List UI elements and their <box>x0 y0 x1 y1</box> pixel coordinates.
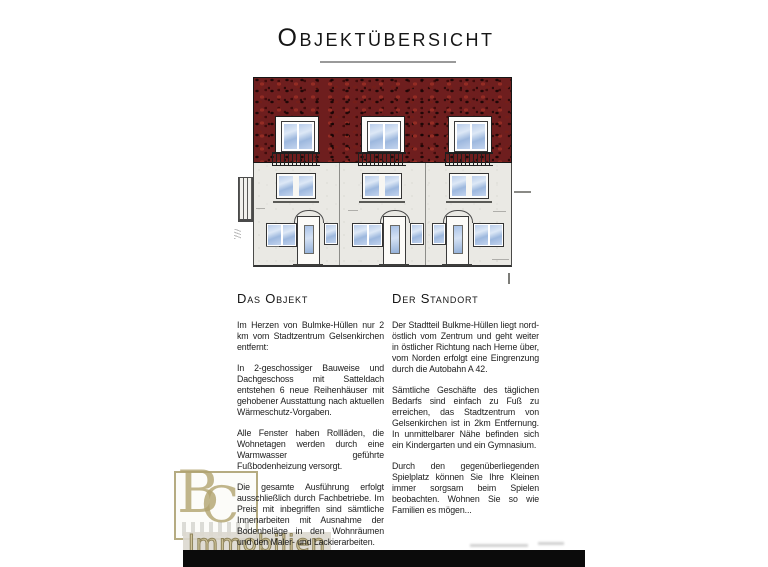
window-sill <box>359 201 405 203</box>
dimension-mark <box>256 208 265 209</box>
balcony-railing <box>358 152 406 166</box>
paragraph: In 2-geschossiger Bauweise und Dachgesch… <box>237 363 384 418</box>
entrance-door <box>383 216 406 265</box>
window-sill <box>273 201 319 203</box>
ground-floor-window <box>352 223 383 247</box>
house-unit <box>426 77 512 267</box>
dimension-mark <box>514 191 531 193</box>
house-unit <box>253 77 339 267</box>
balcony-railing <box>272 152 320 166</box>
dormer-window <box>454 121 488 152</box>
side-window <box>432 223 446 245</box>
upper-floor-window <box>362 173 402 199</box>
ground-floor-window <box>473 223 504 247</box>
paragraph: Im Herzen von Bulmke-Hüllen nur 2 km vom… <box>237 320 384 353</box>
entrance-door <box>297 216 320 265</box>
window-sill <box>446 201 492 203</box>
document-page: Objektübersicht <box>0 0 768 567</box>
paragraph: Alle Fenster haben Rollläden, die Wohnet… <box>237 428 384 472</box>
dormer-window <box>281 121 315 152</box>
section-der-standort: Der Standort Der Stadtteil Bulkme-Hüllen… <box>392 291 539 526</box>
dimension-mark <box>492 259 509 260</box>
dormer <box>361 116 405 154</box>
house-unit <box>339 77 425 267</box>
section-das-objekt: Das Objekt Im Herzen von Bulmke-Hüllen n… <box>237 291 384 558</box>
dimension-mark <box>348 210 358 211</box>
door-threshold <box>442 264 472 266</box>
upper-floor-window <box>449 173 489 199</box>
dormer <box>275 116 319 154</box>
paragraph: Sämtliche Geschäfte des täglichen Bedarf… <box>392 385 539 451</box>
scan-edge-bar <box>183 550 585 567</box>
scan-smudge <box>470 544 528 547</box>
dormer <box>448 116 492 154</box>
shutter-ladder <box>238 177 253 222</box>
paragraph: Der Stadtteil Bulkme-Hüllen liegt nord-ö… <box>392 320 539 375</box>
door-glass <box>390 225 400 254</box>
section-heading: Der Standort <box>392 291 539 306</box>
title-divider <box>320 61 456 63</box>
dormer-window <box>367 121 401 152</box>
building-elevation-drawing <box>253 77 512 267</box>
paragraph: Die gesamte Ausführung erfolgt ausschlie… <box>237 482 384 548</box>
side-window <box>410 223 424 245</box>
scan-smudge <box>538 542 564 545</box>
title-block: Objektübersicht <box>230 24 542 53</box>
side-window <box>324 223 338 245</box>
section-heading: Das Objekt <box>237 291 384 306</box>
page-title: Objektübersicht <box>230 24 542 53</box>
balcony-railing <box>445 152 493 166</box>
dimension-mark <box>493 211 506 212</box>
ground-floor-window <box>266 223 297 247</box>
entrance-door <box>446 216 469 265</box>
door-threshold <box>293 264 323 266</box>
door-glass <box>304 225 314 254</box>
paragraph: Durch den gegenüberliegenden Spielplatz … <box>392 461 539 516</box>
door-threshold <box>379 264 409 266</box>
pencil-smudge <box>234 229 241 239</box>
upper-floor-window <box>276 173 316 199</box>
door-glass <box>453 225 463 254</box>
dimension-mark <box>266 246 279 247</box>
dimension-mark <box>508 273 510 284</box>
